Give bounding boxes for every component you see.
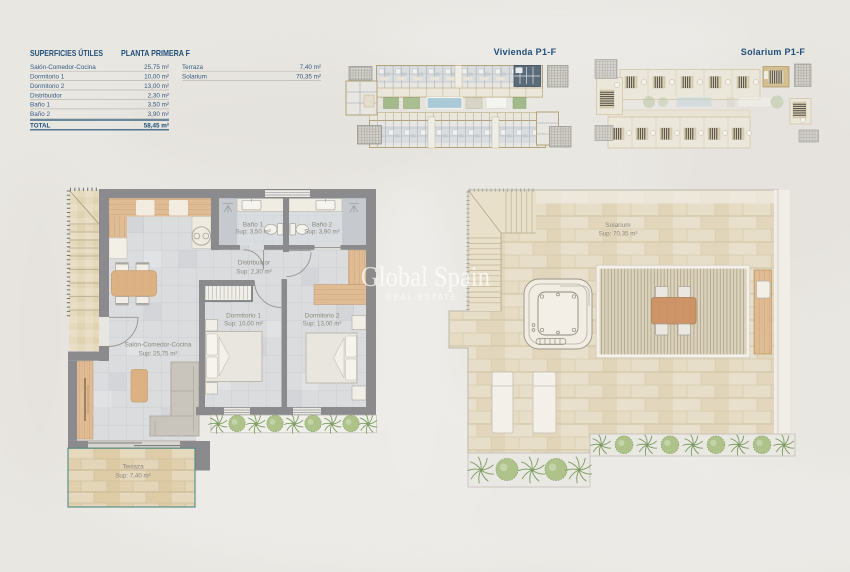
svg-text:Sup: 7,40 m²: Sup: 7,40 m²: [115, 473, 150, 480]
svg-text:3,90 m²: 3,90 m²: [148, 111, 169, 118]
svg-text:2,30 m²: 2,30 m²: [148, 92, 169, 99]
svg-text:Baño 1: Baño 1: [243, 222, 264, 229]
svg-text:Sup: 13,00 m²: Sup: 13,00 m²: [303, 321, 342, 328]
svg-text:3,50 m²: 3,50 m²: [148, 102, 169, 109]
svg-text:Terraza: Terraza: [182, 64, 203, 71]
svg-text:Solarium: Solarium: [605, 222, 630, 229]
svg-text:7,40 m²: 7,40 m²: [300, 64, 321, 71]
svg-text:Solarium: Solarium: [182, 73, 207, 80]
svg-text:Sup: 2,30 m²: Sup: 2,30 m²: [236, 269, 271, 276]
svg-text:Salón-Comedor-Cocina: Salón-Comedor-Cocina: [125, 342, 192, 349]
svg-text:Global Spain: Global Spain: [361, 261, 490, 293]
svg-text:Solarium P1-F: Solarium P1-F: [741, 47, 806, 57]
svg-text:Vivienda P1-F: Vivienda P1-F: [494, 47, 557, 57]
svg-text:Sup: 3,90 m²: Sup: 3,90 m²: [304, 229, 339, 236]
svg-text:PLANTA PRIMERA F: PLANTA PRIMERA F: [121, 49, 190, 58]
svg-text:Dormitorio 1: Dormitorio 1: [30, 73, 65, 80]
svg-text:10,00 m²: 10,00 m²: [144, 73, 169, 80]
svg-text:58,45 m²: 58,45 m²: [144, 122, 169, 129]
svg-text:Sup: 3,50 m²: Sup: 3,50 m²: [235, 229, 270, 236]
svg-text:Salón-Comedor-Cocina: Salón-Comedor-Cocina: [30, 64, 96, 71]
svg-text:Baño 2: Baño 2: [30, 111, 50, 118]
svg-text:Sup: 25,75 m²: Sup: 25,75 m²: [139, 351, 178, 358]
svg-text:TOTAL: TOTAL: [30, 122, 51, 129]
svg-text:Dormitorio 2: Dormitorio 2: [305, 313, 340, 320]
svg-text:Distribuidor: Distribuidor: [30, 92, 62, 99]
svg-text:Sup: 70,35 m²: Sup: 70,35 m²: [599, 231, 638, 238]
svg-text:13,00 m²: 13,00 m²: [144, 83, 169, 90]
svg-text:Sup: 10,00 m²: Sup: 10,00 m²: [224, 321, 263, 328]
svg-text:70,35 m²: 70,35 m²: [296, 73, 321, 80]
svg-text:Baño 1: Baño 1: [30, 102, 50, 109]
svg-text:Distribuidor: Distribuidor: [238, 260, 271, 267]
svg-text:Dormitorio 1: Dormitorio 1: [226, 313, 261, 320]
svg-text:REAL ESTATE: REAL ESTATE: [386, 292, 458, 302]
svg-text:Dormitorio 2: Dormitorio 2: [30, 83, 65, 90]
svg-text:Terraza: Terraza: [122, 464, 144, 471]
svg-text:25,75 m²: 25,75 m²: [144, 64, 169, 71]
svg-text:SUPERFICIES ÚTILES: SUPERFICIES ÚTILES: [30, 47, 103, 58]
svg-text:Baño 2: Baño 2: [312, 222, 333, 229]
